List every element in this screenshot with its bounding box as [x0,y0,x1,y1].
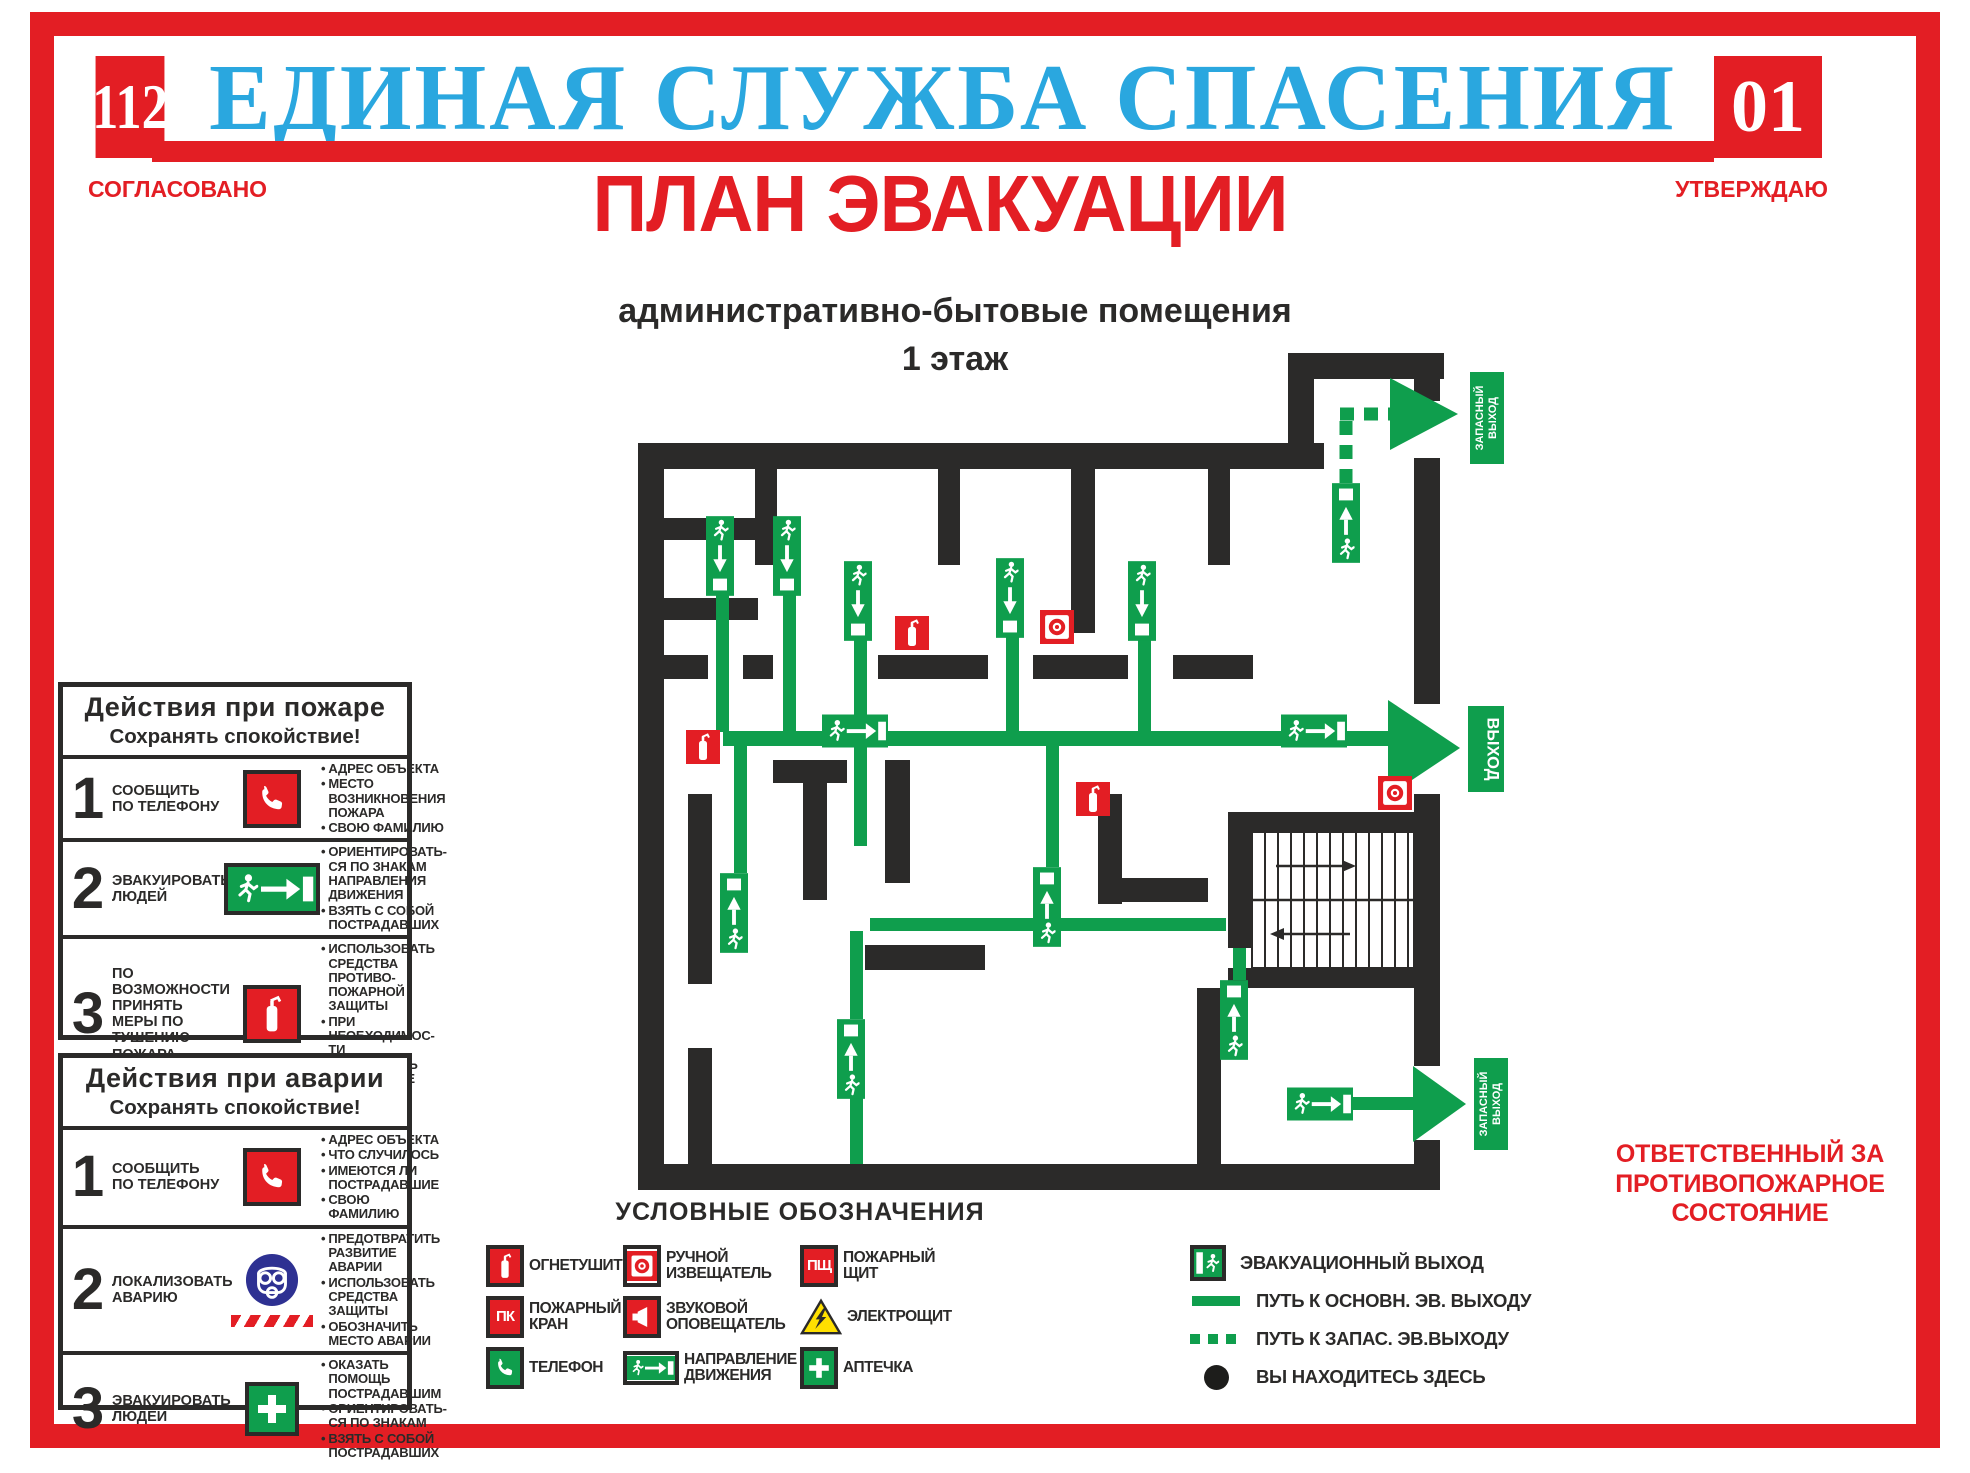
legend-item: ЗВУКОВОЙ ОПОВЕЩАТЕЛЬ [623,1296,800,1338]
legend-item: РУЧНОЙ ИЗВЕЩАТЕЛЬ [623,1245,800,1287]
legend-label: НАПРАВЛЕНИЕ ДВИЖЕНИЯ [684,1352,800,1383]
step-action: СООБЩИТЬ ПО ТЕЛЕФОНУ [110,783,224,815]
you-are-here-icon [1190,1365,1242,1390]
step-number: 1 [66,1151,110,1203]
svg-text:ВЫХОД: ВЫХОД [1487,397,1499,439]
legend-item: ЭВАКУАЦИОННЫЙ ВЫХОД [1190,1244,1531,1282]
svg-text:ВЫХОД: ВЫХОД [1491,1083,1503,1125]
step-bullet: ОКАЗАТЬ ПОМОЩЬ ПОСТРАДАВШИМ [321,1358,447,1401]
call-point-markers [1040,610,1412,810]
legend-item: ЭЛЕКТРОЩИТ [800,1297,952,1337]
step-number: 2 [66,1264,110,1316]
legend-left-group: ОГНЕТУШИТЕЛЬ РУЧНОЙ ИЗВЕЩАТЕЛЬ ПЩ ПОЖАРН… [486,1240,952,1393]
step-icon [224,985,320,1043]
legend-label: ЭЛЕКТРОЩИТ [847,1309,952,1325]
step-bullet: ОРИЕНТИРОВАТЬ-СЯ ПО ЗНАКАМ НАПРАВЛЕНИЯ Д… [321,845,447,902]
first-aid-icon [245,1382,299,1436]
phone-icon [243,1148,301,1206]
legend-label: ЭВАКУАЦИОННЫЙ ВЫХОД [1240,1252,1484,1274]
step-number: 2 [66,863,110,915]
step-bullets: АДРЕС ОБЪЕКТАЧТО СЛУЧИЛОСЬИМЕЮТСЯ ЛИ ПОС… [320,1132,439,1223]
legend-label: ПУТЬ К ОСНОВН. ЭВ. ВЫХОДУ [1256,1290,1531,1312]
service-title: ЕДИНАЯ СЛУЖБА СПАСЕНИЯ [191,44,1694,152]
legend-item: ПК ПОЖАРНЫЙ КРАН [486,1296,623,1338]
svg-text:ЗАПАСНЫЙ: ЗАПАСНЫЙ [1473,385,1486,450]
action-box-title: Действия при аварии [63,1063,407,1094]
approved-label: УТВЕРЖДАЮ [1628,176,1828,203]
action-step: 1 СООБЩИТЬ ПО ТЕЛЕФОНУ АДРЕС ОБЪЕКТАЧТО … [63,1130,407,1229]
step-icon [224,863,320,915]
legend-label: АПТЕЧКА [843,1360,913,1376]
legend-item: ПУТЬ К ОСНОВН. ЭВ. ВЫХОДУ [1190,1282,1531,1320]
step-bullet: ИСПОЛЬЗОВАТЬ СРЕДСТВА ПРОТИВО-ПОЖАРНОЙ З… [321,942,435,1013]
action-box-header: Действия при аварии Сохранять спокойстви… [63,1058,407,1130]
emergency-path-line-icon [1190,1334,1242,1344]
step-number: 3 [66,988,110,1040]
hazard-stripe [231,1315,313,1327]
legend-label: ВЫ НАХОДИТЕСЬ ЗДЕСЬ [1256,1366,1485,1388]
step-action: ПО ВОЗМОЖНОСТИ ПРИНЯТЬ МЕРЫ ПО ТУШЕНИЮ П… [110,966,224,1063]
step-bullet: ВЗЯТЬ С СОБОЙ ПОСТРАДАВШИХ [321,904,447,933]
call-point-icon [623,1245,661,1287]
exit-sign-icon [224,863,320,915]
fire-shield-icon: ПЩ [800,1245,838,1287]
legend-label: ТЕЛЕФОН [529,1360,603,1376]
step-bullet: ИМЕЮТСЯ ЛИ ПОСТРАДАВШИЕ [321,1164,439,1193]
action-step: 2 ЭВАКУИРОВАТЬ ЛЮДЕЙ ОРИЕНТИРОВАТЬ-СЯ ПО… [63,842,407,939]
action-box-header: Действия при пожаре Сохранять спокойстви… [63,687,407,759]
sounder-icon [623,1296,661,1338]
extinguisher-icon [243,985,301,1043]
step-action: СООБЩИТЬ ПО ТЕЛЕФОНУ [110,1161,224,1193]
phone-icon [243,770,301,828]
main-exit-label: ВЫХОД [1468,706,1504,792]
svg-text:ВЫХОД: ВЫХОД [1484,717,1502,780]
emergency-path-dashed [1340,414,1398,483]
legend-label: ПОЖАРНЫЙ КРАН [529,1301,623,1332]
legend-item: АПТЕЧКА [800,1347,952,1389]
legend-item: НАПРАВЛЕНИЕ ДВИЖЕНИЯ [623,1351,800,1385]
step-bullet: МЕСТО ВОЗНИКНОВЕНИЯ ПОЖАРА [321,777,445,820]
step-bullet: ОБОЗНАЧИТЬ МЕСТО АВАРИИ [321,1320,440,1349]
step-bullet: ИСПОЛЬЗОВАТЬ СРЕДСТВА ЗАЩИТЫ [321,1276,440,1319]
gas-mask-icon [231,1253,313,1327]
step-bullet: АДРЕС ОБЪЕКТА [321,762,445,776]
step-action: ЭВАКУИРОВАТЬ ЛЮДЕЙ [110,1393,224,1425]
legend-label: ПОЖАРНЫЙ ЩИТ [843,1250,952,1281]
step-icon [224,1253,320,1327]
step-bullet: АДРЕС ОБЪЕКТА [321,1133,439,1147]
action-box-title: Действия при пожаре [63,692,407,723]
phone-icon [486,1347,524,1389]
step-number: 3 [66,1383,110,1435]
walls [638,353,1444,1190]
legend-label: ЗВУКОВОЙ ОПОВЕЩАТЕЛЬ [666,1301,800,1332]
action-step: 2 ЛОКАЛИЗОВАТЬ АВАРИЮ ПРЕДОТВРАТИТЬ РАЗВ… [63,1229,407,1355]
legend-right-group: ЭВАКУАЦИОННЫЙ ВЫХОД ПУТЬ К ОСНОВН. ЭВ. В… [1190,1244,1531,1396]
direction-sign-icon [623,1351,679,1385]
step-bullet: ЧТО СЛУЧИЛОСЬ [321,1148,439,1162]
step-action: ЛОКАЛИЗОВАТЬ АВАРИЮ [110,1274,224,1306]
action-step: 1 СООБЩИТЬ ПО ТЕЛЕФОНУ АДРЕС ОБЪЕКТАМЕСТ… [63,759,407,842]
step-bullets: ПРЕДОТВРАТИТЬ РАЗВИТИЕ АВАРИИИСПОЛЬЗОВАТ… [320,1231,440,1349]
accident-actions-box: Действия при аварии Сохранять спокойстви… [58,1053,412,1410]
electro-panel-icon [800,1297,842,1337]
bottom-emergency-exit-arrow [1413,1066,1466,1142]
floor-plan: ВЫХОД ЗАПАСНЫЙ ВЫХОД ЗАПАСНЫЙ ВЫХОД [628,348,1508,1193]
step-bullet: ОРИЕНТИРОВАТЬ-СЯ ПО ЗНАКАМ [321,1402,447,1431]
evacuation-plan-poster: 112 ЕДИНАЯ СЛУЖБА СПАСЕНИЯ 01 СОГЛАСОВАН… [0,0,1970,1473]
step-bullet: ВЗЯТЬ С СОБОЙ ПОСТРАДАВШИХ [321,1432,447,1461]
step-number: 1 [66,773,110,825]
step-bullets: ОКАЗАТЬ ПОМОЩЬ ПОСТРАДАВШИМОРИЕНТИРОВАТЬ… [320,1357,447,1461]
legend-label: РУЧНОЙ ИЗВЕЩАТЕЛЬ [666,1250,800,1281]
step-action: ЭВАКУИРОВАТЬ ЛЮДЕЙ [110,873,224,905]
step-icon [224,770,320,828]
page-title: ПЛАН ЭВАКУАЦИИ [465,158,1415,250]
responsible-person-label: ОТВЕТСТВЕННЫЙ ЗА ПРОТИВОПОЖАРНОЕ СОСТОЯН… [1590,1140,1910,1229]
action-box-subtitle: Сохранять спокойствие! [63,1096,407,1120]
step-bullets: ОРИЕНТИРОВАТЬ-СЯ ПО ЗНАКАМ НАПРАВЛЕНИЯ Д… [320,844,447,933]
stairs [1252,832,1414,968]
legend-item: ПЩ ПОЖАРНЫЙ ЩИТ [800,1245,952,1287]
legend-item: ТЕЛЕФОН [486,1347,623,1389]
legend-item: ВЫ НАХОДИТЕСЬ ЗДЕСЬ [1190,1358,1531,1396]
step-bullets: АДРЕС ОБЪЕКТАМЕСТО ВОЗНИКНОВЕНИЯ ПОЖАРАС… [320,761,445,836]
evacuation-exit-icon [1190,1245,1226,1281]
agreed-label: СОГЛАСОВАНО [88,176,267,203]
extinguisher-icon [486,1245,524,1287]
step-bullet: ПРЕДОТВРАТИТЬ РАЗВИТИЕ АВАРИИ [321,1232,440,1275]
legend-label: ПУТЬ К ЗАПАС. ЭВ.ВЫХОДУ [1256,1328,1509,1350]
fire-actions-box: Действия при пожаре Сохранять спокойстви… [58,682,412,1040]
step-bullet: СВОЮ ФАМИЛИЮ [321,1193,439,1222]
step-icon [224,1382,320,1436]
fire-hydrant-icon: ПК [486,1296,524,1338]
legend-title: УСЛОВНЫЕ ОБОЗНАЧЕНИЯ [560,1198,1040,1227]
step-icon [224,1148,320,1206]
action-box-subtitle: Сохранять спокойствие! [63,725,407,749]
legend-item: ПУТЬ К ЗАПАС. ЭВ.ВЫХОДУ [1190,1320,1531,1358]
bottom-emergency-exit-label: ЗАПАСНЫЙ ВЫХОД [1474,1058,1508,1150]
first-aid-icon [800,1347,838,1389]
action-step: 3 ЭВАКУИРОВАТЬ ЛЮДЕЙ ОКАЗАТЬ ПОМОЩЬ ПОСТ… [63,1355,407,1463]
legend-item: ОГНЕТУШИТЕЛЬ [486,1245,623,1287]
emergency-number-01: 01 [1714,56,1822,158]
svg-text:ЗАПАСНЫЙ: ЗАПАСНЫЙ [1477,1071,1490,1136]
top-emergency-exit-label: ЗАПАСНЫЙ ВЫХОД [1470,372,1504,464]
building-subtitle: административно-бытовые помещения [455,292,1455,331]
step-bullet: СВОЮ ФАМИЛИЮ [321,821,445,835]
main-path-line-icon [1190,1296,1242,1306]
